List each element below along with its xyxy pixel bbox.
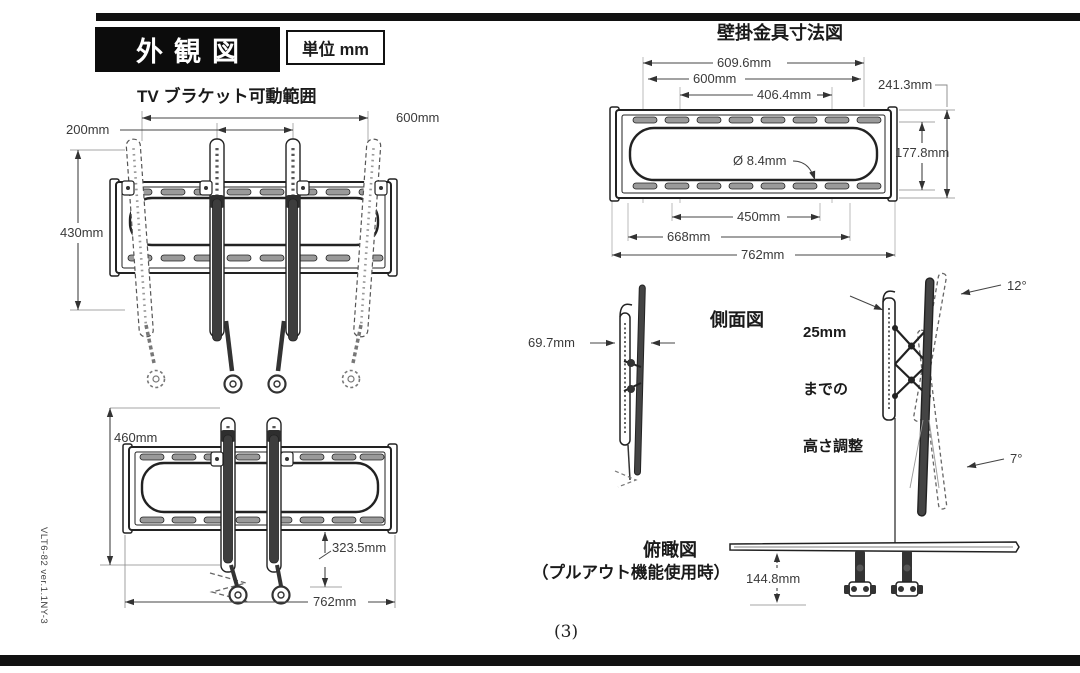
dim-450: 450mm	[672, 209, 820, 224]
dim-label-hole: Ø 8.4mm	[733, 153, 786, 168]
dim-200-gap: 200mm	[66, 122, 293, 137]
dim-697-depth: 69.7mm	[528, 335, 675, 350]
front-view-drawing: 600mm 200mm 430mm	[60, 103, 480, 405]
dim-label-rail-span: 600mm	[396, 110, 439, 125]
front-extension-lines	[142, 111, 368, 143]
dim-tilt-down: 7°	[967, 451, 1022, 467]
extended-wall-plate	[123, 444, 397, 533]
dim-label-front-height: 430mm	[60, 225, 103, 240]
unit-label: 単位 mm	[286, 30, 385, 65]
page-title: 外観図	[95, 27, 280, 72]
side-right-bracket	[883, 278, 939, 548]
product-code: VLT6-82 ver.1.1NY-3	[38, 527, 49, 624]
height-adjust-leader	[850, 296, 883, 310]
dim-label-668: 668mm	[667, 229, 710, 244]
dim-label-outer-height: 241.3mm	[878, 77, 932, 92]
dim-label-pullout: 144.8mm	[746, 571, 800, 586]
front-wall-plate	[110, 179, 397, 276]
dim-600-span: 600mm	[142, 110, 439, 125]
dim-323-drop: 323.5mm	[310, 532, 386, 587]
dim-668: 668mm	[628, 229, 850, 244]
tv-panel-top	[730, 542, 1019, 552]
side-view-right-drawing: 12° 7°	[795, 270, 1080, 560]
dim-label-ext-width: 762mm	[313, 594, 356, 609]
dim-label-tilt-down: 7°	[1010, 451, 1022, 466]
dim-762-plate: 762mm	[612, 247, 895, 262]
dim-1448-pullout: 144.8mm	[746, 553, 806, 605]
extended-view-drawing: 460mm 323.	[60, 405, 480, 620]
dim-label-450: 450mm	[737, 209, 780, 224]
dim-label-drop: 323.5mm	[332, 540, 386, 555]
side-left-bracket	[615, 285, 645, 487]
dim-label-406: 406.4mm	[757, 87, 811, 102]
dim-label-tilt-up: 12°	[1007, 278, 1027, 293]
dim-406: 406.4mm	[680, 87, 832, 102]
pullout-bracket-left	[844, 551, 876, 596]
wall-plate-title: 壁掛金具寸法図	[717, 19, 843, 45]
side-view-left-drawing: 69.7mm	[520, 275, 790, 490]
dim-label-hole-span: 609.6mm	[717, 55, 771, 70]
top-rule	[96, 13, 1080, 21]
dim-label-762: 762mm	[741, 247, 784, 262]
bottom-rule	[0, 655, 1080, 666]
extended-break-and-hooks	[210, 565, 290, 604]
front-hook-rods	[146, 321, 361, 393]
dim-1778: 177.8mm	[895, 122, 949, 190]
pullout-bracket-right	[891, 551, 923, 596]
top-view-drawing: 144.8mm	[720, 530, 1030, 618]
dim-600: 600mm	[648, 71, 861, 86]
manual-page: { "header": { "title": "外観図", "unit": "単…	[0, 0, 1080, 673]
dim-label-inner-height: 177.8mm	[895, 145, 949, 160]
dim-label-600: 600mm	[693, 71, 736, 86]
dim-label-ext-height: 460mm	[114, 430, 157, 445]
dim-label-rail-gap: 200mm	[66, 122, 109, 137]
wall-plate-drawing: 609.6mm 600mm 406.4mm 241.3mm Ø	[595, 45, 1080, 270]
page-number: (3)	[554, 622, 578, 642]
dim-label-depth: 69.7mm	[528, 335, 575, 350]
dim-tilt-up: 12°	[961, 278, 1027, 294]
dim-6096: 609.6mm	[643, 55, 864, 70]
top-view-subtitle: （プルアウト機能使用時）	[532, 559, 730, 583]
